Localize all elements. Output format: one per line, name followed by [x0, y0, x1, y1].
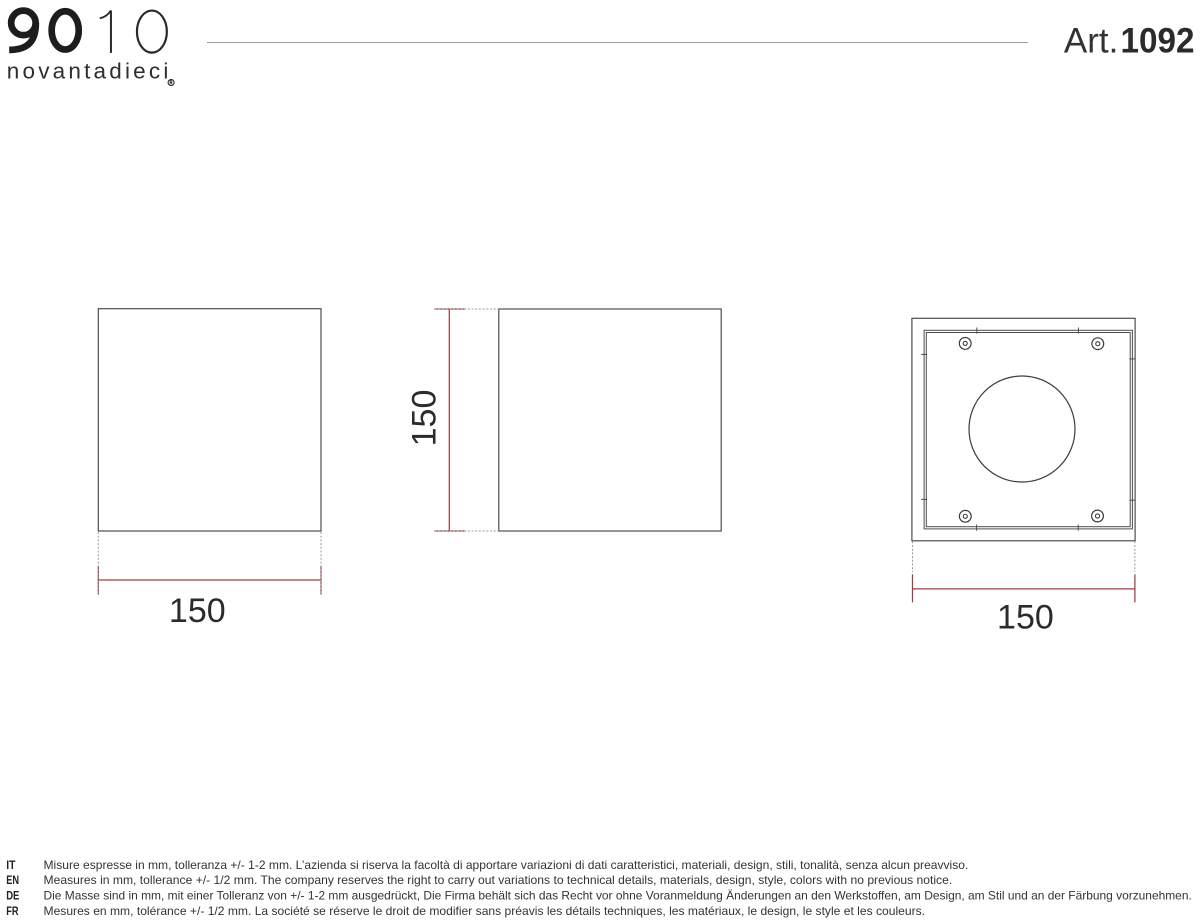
svg-text:1092: 1092	[1121, 22, 1195, 61]
svg-text:Mesures en mm, tolérance +/- 1: Mesures en mm, tolérance +/- 1/2 mm. La …	[44, 904, 926, 918]
svg-text:IT: IT	[6, 858, 16, 872]
svg-text:150: 150	[406, 390, 444, 447]
svg-text:novantadieci: novantadieci	[7, 58, 172, 83]
svg-text:DE: DE	[6, 889, 19, 903]
svg-text:Die Masse sind in mm, mit eine: Die Masse sind in mm, mit einer Tolleran…	[44, 889, 1192, 903]
svg-text:FR: FR	[6, 904, 19, 918]
svg-text:150: 150	[997, 598, 1054, 636]
svg-text:Art.: Art.	[1064, 21, 1118, 60]
svg-text:Measures in mm, tollerance +/-: Measures in mm, tollerance +/- 1/2 mm. T…	[44, 873, 953, 887]
svg-text:EN: EN	[6, 873, 19, 887]
svg-text:150: 150	[169, 592, 226, 630]
svg-text:Misure espresse in mm, tollera: Misure espresse in mm, tolleranza +/- 1-…	[44, 858, 969, 872]
